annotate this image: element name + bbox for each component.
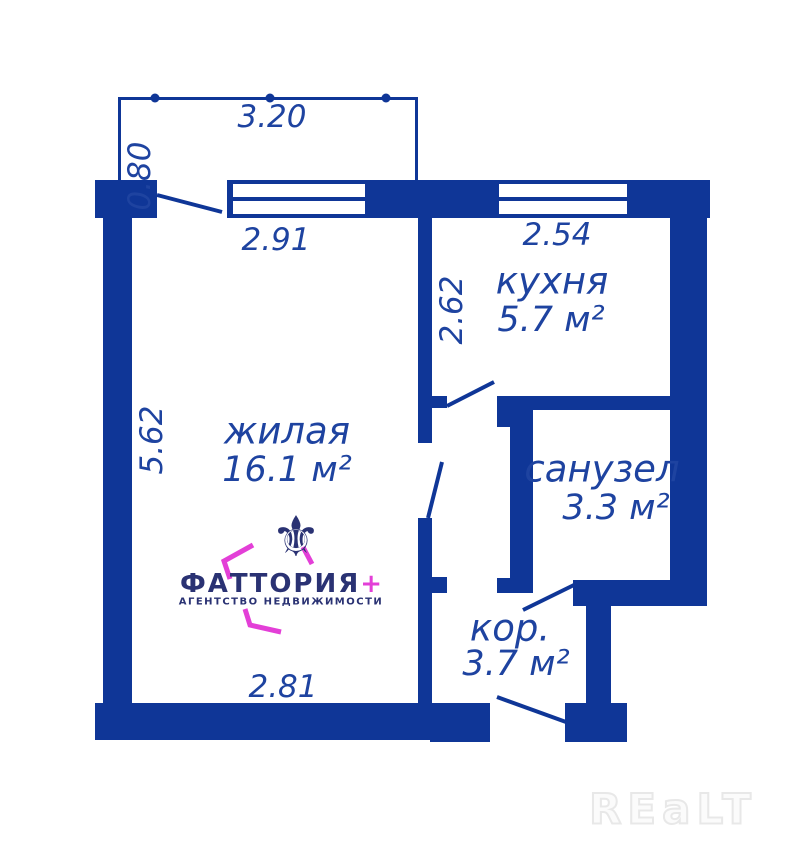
- living-window-pane-top: [233, 184, 365, 197]
- living-room-label: жилая: [224, 410, 350, 453]
- wall-bottom-jamb: [430, 703, 490, 742]
- realt-watermark: REaLT: [589, 785, 757, 834]
- floor-plan: 3.20 0.80 2.91 2.54 2.62 5.62 2.81 жилая…: [0, 0, 793, 867]
- balcony-door-opening: [157, 180, 227, 218]
- wall-right: [670, 218, 707, 606]
- dimension-living-left: 5.62: [134, 405, 170, 474]
- divider-wall-upper: [418, 218, 432, 443]
- kitchen-label: кухня: [496, 260, 609, 303]
- dimension-living-bottom: 2.81: [248, 669, 317, 705]
- kitchen-door-swing: [447, 382, 494, 406]
- living-window-pane-bottom: [233, 201, 365, 214]
- divider-wall-lower: [418, 518, 432, 703]
- dimension-kitchen-left: 2.62: [434, 275, 470, 344]
- corridor-right-wall: [586, 606, 611, 703]
- logo-plus-sign: +: [360, 569, 384, 599]
- balcony-wall-right: [415, 97, 418, 180]
- kitchen-door-stub: [432, 396, 447, 408]
- living-room-area: 16.1 м²: [222, 450, 352, 490]
- logo-tagline: АГЕНТСТВО НЕДВИЖИМОСТИ: [179, 597, 384, 608]
- dimension-balcony-width: 3.20: [237, 99, 306, 135]
- dimension-kitchen-top: 2.54: [522, 217, 591, 253]
- corridor-area: 3.7 м²: [462, 644, 569, 684]
- balcony-wall-left: [118, 97, 121, 180]
- fleur-de-lis-icon: ⚜: [271, 510, 321, 566]
- logo-brand-name: ФАТТОРИЯ: [180, 569, 360, 599]
- bathroom-bottom-wall: [573, 580, 707, 606]
- entrance-jamb: [565, 703, 627, 742]
- wall-left: [103, 218, 132, 703]
- kitchen-window-pane-bottom: [499, 201, 627, 214]
- dimension-living-top: 2.91: [241, 222, 310, 258]
- kitchen-window-pane-top: [499, 184, 627, 197]
- entrance-door-swing: [497, 697, 566, 722]
- logo-brand-text: ФАТТОРИЯ+: [180, 569, 384, 599]
- bathroom-left-wall: [510, 410, 533, 578]
- kitchen-bottom-wall: [497, 396, 670, 410]
- logo-bracket-bottom-left: [245, 609, 281, 632]
- living-door-swing: [428, 462, 442, 518]
- kitchen-area: 5.7 м²: [497, 300, 604, 340]
- bathroom-area: 3.3 м²: [562, 488, 669, 528]
- corridor-door-stub: [432, 577, 447, 593]
- bathroom-left-wall-foot: [497, 578, 533, 593]
- dimension-balcony-depth: 0.80: [122, 141, 158, 210]
- bathroom-label: санузел: [524, 448, 679, 491]
